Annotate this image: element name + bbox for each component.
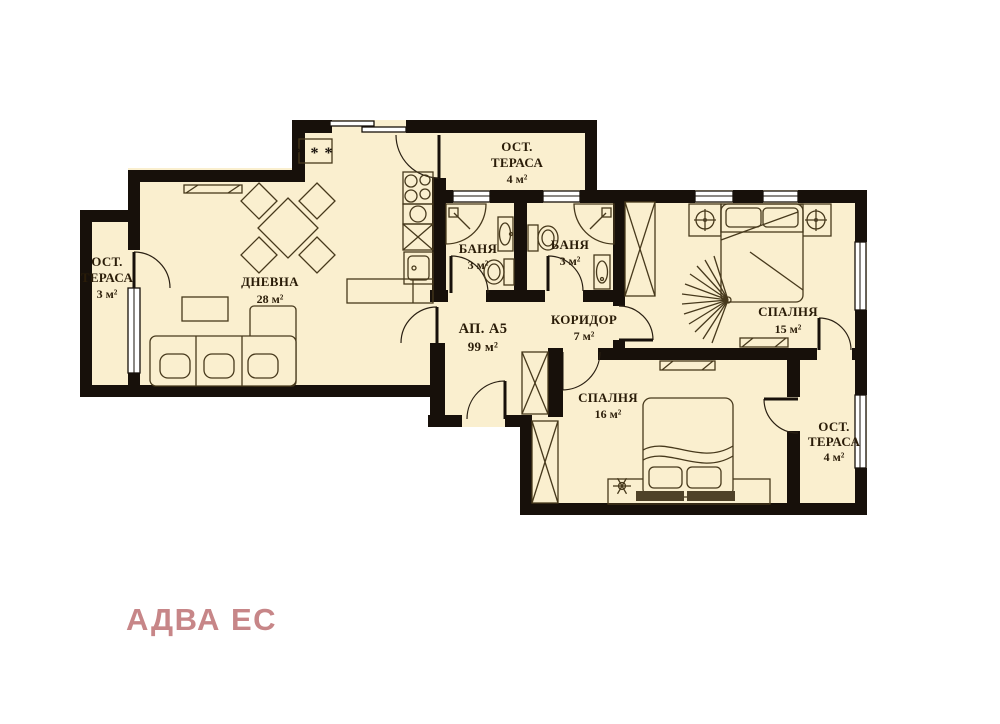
nightstand-right xyxy=(801,204,831,236)
room-area-label: 4 м² xyxy=(824,450,845,464)
room-name-line: ОСТ. xyxy=(501,139,532,154)
room-name-line: КОРИДОР xyxy=(551,312,617,327)
room-area-label: 3 м² xyxy=(560,254,581,268)
room-name-line: СПАЛНЯ xyxy=(758,304,818,319)
room-name-line: ТЕРАСА xyxy=(81,270,134,285)
brand-logo: АДВА ЕС xyxy=(126,602,277,638)
floorplan-page: * * * xyxy=(0,0,1000,724)
room-area-label: 4 м² xyxy=(507,172,528,186)
nightstand-left xyxy=(689,204,721,236)
room-name-line: СПАЛНЯ xyxy=(578,390,638,405)
room-name-line: БАНЯ xyxy=(459,241,498,256)
room-area-label: 15 м² xyxy=(775,322,802,336)
room-name-line: БАНЯ xyxy=(551,237,590,252)
apartment-number: АП. А5 xyxy=(459,321,508,337)
wardrobe-hall xyxy=(522,352,548,414)
room-name-line: ОСТ. xyxy=(818,419,849,434)
window-bathroom-1 xyxy=(453,191,490,202)
apartment-area: 99 м² xyxy=(468,339,499,354)
window-bathroom-2 xyxy=(543,191,580,202)
room-name-line: ДНЕВНА xyxy=(241,274,299,289)
room-area-label: 28 м² xyxy=(257,292,284,306)
double-bed xyxy=(721,204,803,302)
window-bedroom15-north-2 xyxy=(763,191,798,202)
room-name-line: ОСТ. xyxy=(91,254,122,269)
room-area-label: 3 м² xyxy=(468,258,489,272)
window-terrace-right xyxy=(855,395,866,468)
room-area-label: 16 м² xyxy=(595,407,622,421)
double-bed-16 xyxy=(636,398,735,501)
wardrobe-bedroom-15 xyxy=(625,202,655,296)
room-area-label: 7 м² xyxy=(574,329,595,343)
room-name-line: ТЕРАСА xyxy=(808,434,861,449)
window-bedroom15-east xyxy=(855,242,866,310)
wardrobe-bedroom-16 xyxy=(532,421,558,503)
window-terrace-left xyxy=(128,288,140,373)
window-bedroom15-north-1 xyxy=(695,191,733,202)
kitchen-marker: * * * xyxy=(297,145,334,162)
room-area-label: 3 м² xyxy=(97,287,118,301)
room-name-line: ТЕРАСА xyxy=(491,155,544,170)
